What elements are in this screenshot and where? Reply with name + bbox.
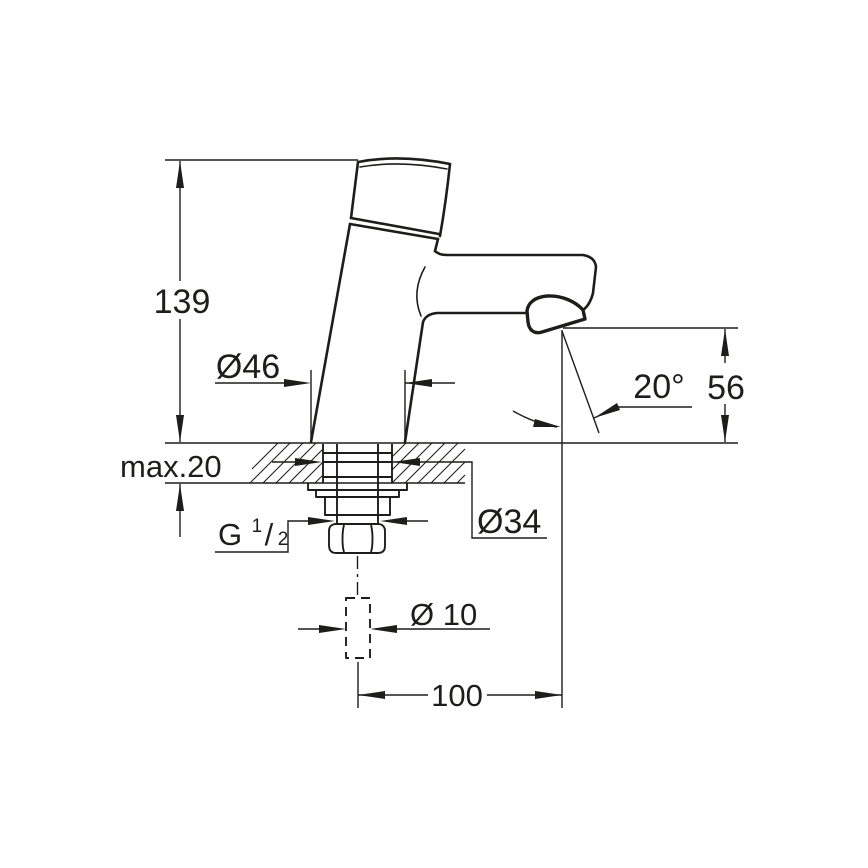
dim-thread-size: G 1 / 2	[215, 516, 428, 552]
arrowhead-left	[370, 625, 397, 633]
label-base-diameter: Ø46	[216, 348, 280, 386]
body-left-edge	[311, 224, 350, 442]
arrowhead-right	[535, 691, 562, 699]
arrowhead-right	[284, 379, 311, 387]
drawing-canvas: 139 max.20 Ø46 Ø34 G 1 / 2	[0, 0, 868, 868]
arrowhead-up	[176, 484, 184, 511]
arrowhead-down	[721, 415, 729, 442]
label-spray-angle: 20°	[633, 368, 684, 406]
technical-drawing: 139 max.20 Ø46 Ø34 G 1 / 2	[0, 0, 868, 868]
leader-arrowhead	[594, 403, 620, 418]
handle-top-rim	[360, 164, 447, 169]
spray-angle-line	[562, 331, 599, 433]
body-blend-curve	[417, 267, 425, 316]
spout-underside	[405, 313, 528, 442]
thread-denominator: 2	[278, 529, 289, 550]
handle-left-edge	[351, 162, 358, 218]
dim-total-height: 139	[154, 160, 358, 442]
flange-step-lines	[316, 490, 399, 497]
handle-top-edge	[358, 158, 450, 164]
dim-spout-reach: 100	[358, 662, 562, 713]
arrowhead-right	[319, 625, 346, 633]
arc-arrowhead	[533, 419, 561, 427]
thread-slash: /	[265, 517, 274, 552]
coupling-nut-outline	[329, 524, 385, 553]
arrowhead-up	[721, 329, 729, 356]
dim-base-diameter: Ø46	[215, 348, 455, 442]
label-outlet-height: 56	[707, 369, 745, 407]
dim-shank-diameter: Ø34	[272, 458, 547, 541]
arrowhead-left	[380, 517, 407, 525]
top-washer-bands	[323, 453, 392, 477]
arrowhead-up	[176, 161, 184, 188]
arrowhead-left	[405, 379, 432, 387]
label-supply-diameter: Ø 10	[410, 597, 477, 632]
label-shank-diameter: Ø34	[477, 503, 541, 541]
aerator-outlet	[527, 296, 585, 333]
thread-letter: G	[218, 517, 242, 552]
flange-stack-outline	[308, 483, 407, 515]
arrowhead-right	[295, 458, 322, 466]
label-counter-thickness: max.20	[120, 449, 222, 484]
coupling-nut-facets	[343, 525, 373, 552]
handle-right-edge	[440, 164, 450, 236]
dim-counter-thickness: max.20	[120, 449, 222, 537]
label-spout-reach: 100	[431, 678, 483, 713]
shank-thread-segment	[337, 515, 378, 524]
arrowhead-right	[308, 517, 335, 525]
arrowhead-down	[176, 415, 184, 442]
faucet-outline	[311, 158, 596, 442]
dim-supply-diameter: Ø 10	[298, 597, 490, 633]
arrowhead-left	[358, 691, 385, 699]
body-right-edge-upper	[435, 239, 438, 251]
thread-numerator: 1	[252, 516, 263, 537]
countertop	[165, 443, 738, 483]
thread-size-label: G 1 / 2	[218, 516, 288, 552]
supply-tube-dashed	[346, 598, 370, 658]
label-total-height: 139	[154, 283, 211, 321]
faucet-shank	[337, 444, 378, 515]
